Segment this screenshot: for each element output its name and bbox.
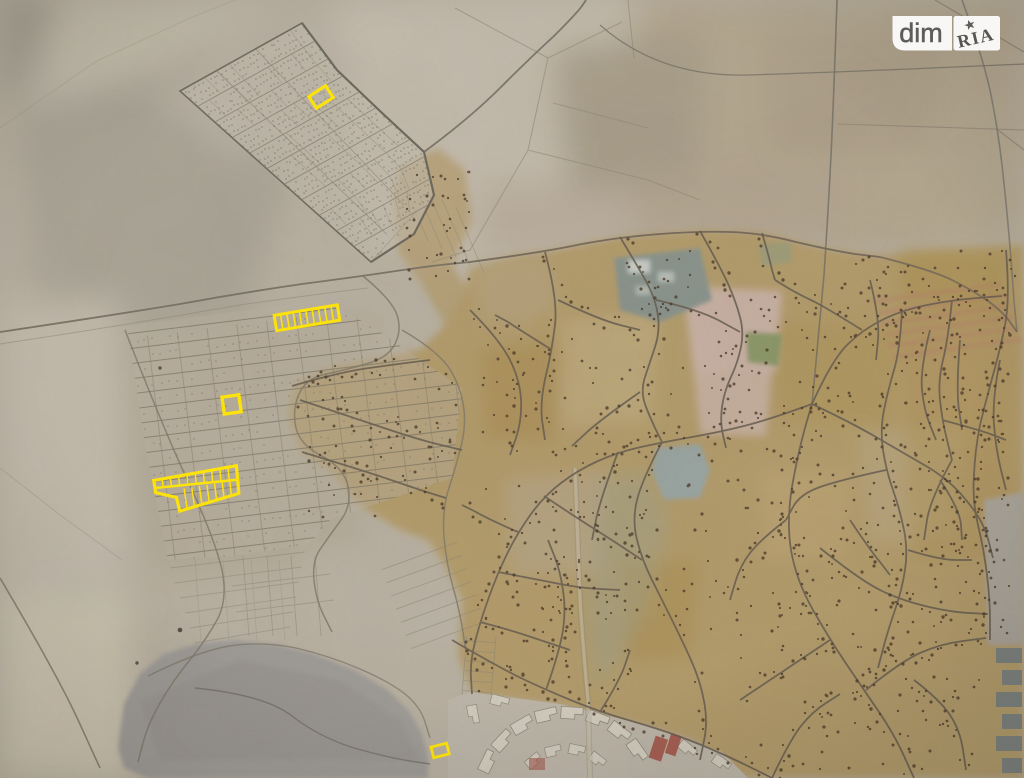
svg-text:dim: dim xyxy=(899,18,943,48)
